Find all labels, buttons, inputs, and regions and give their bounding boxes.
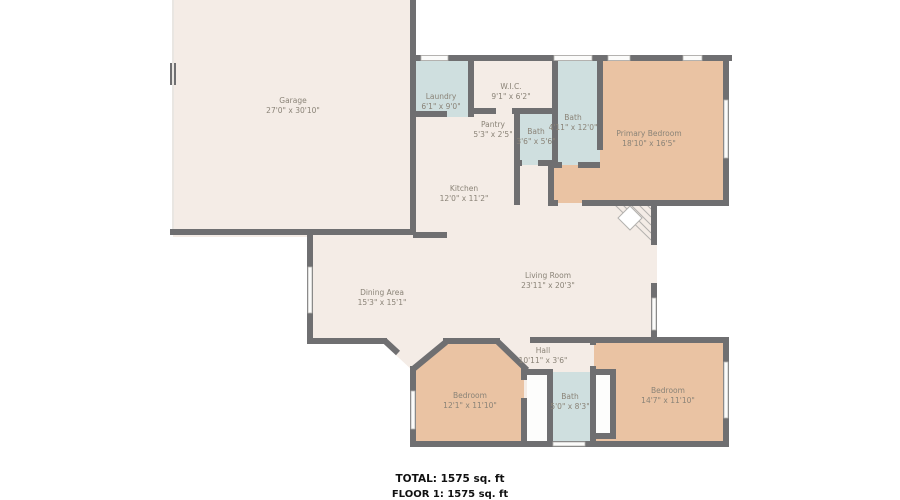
room-label-bedroom-right: Bedroom14'7" x 11'10" — [641, 386, 695, 406]
closet-left — [527, 375, 547, 441]
room-bath-primary — [555, 58, 600, 165]
room-label-bedroom-left: Bedroom12'1" x 11'10" — [443, 391, 497, 411]
room-label-living-room: Living Room23'11" x 20'3" — [521, 271, 575, 291]
room-label-wic: W.I.C.9'1" x 6'2" — [491, 82, 530, 102]
floor-plan-drawing — [0, 0, 900, 500]
room-label-dining-area: Dining Area15'3" x 15'1" — [358, 288, 407, 308]
room-label-hall: Hall10'11" x 3'6" — [519, 346, 568, 366]
room-label-laundry: Laundry6'1" x 9'0" — [421, 92, 460, 112]
room-label-garage: Garage27'0" x 30'10" — [266, 96, 320, 116]
room-label-kitchen: Kitchen12'0" x 11'2" — [440, 184, 489, 204]
floor-plan-page: Garage27'0" x 30'10" Laundry6'1" x 9'0" … — [0, 0, 900, 500]
room-label-bath-primary: Bath4'11" x 12'0" — [549, 113, 598, 133]
total-area-text: TOTAL: 1575 sq. ft — [396, 473, 505, 485]
closet-right — [596, 375, 610, 433]
floor1-area-text: FLOOR 1: 1575 sq. ft — [392, 489, 508, 500]
room-label-primary-bedroom: Primary Bedroom18'10" x 16'5" — [616, 129, 681, 149]
garage-door-line — [172, 0, 174, 229]
room-label-pantry: Pantry5'3" x 2'5" — [473, 120, 512, 140]
room-label-bath-bottom: Bath5'0" x 8'3" — [550, 392, 589, 412]
